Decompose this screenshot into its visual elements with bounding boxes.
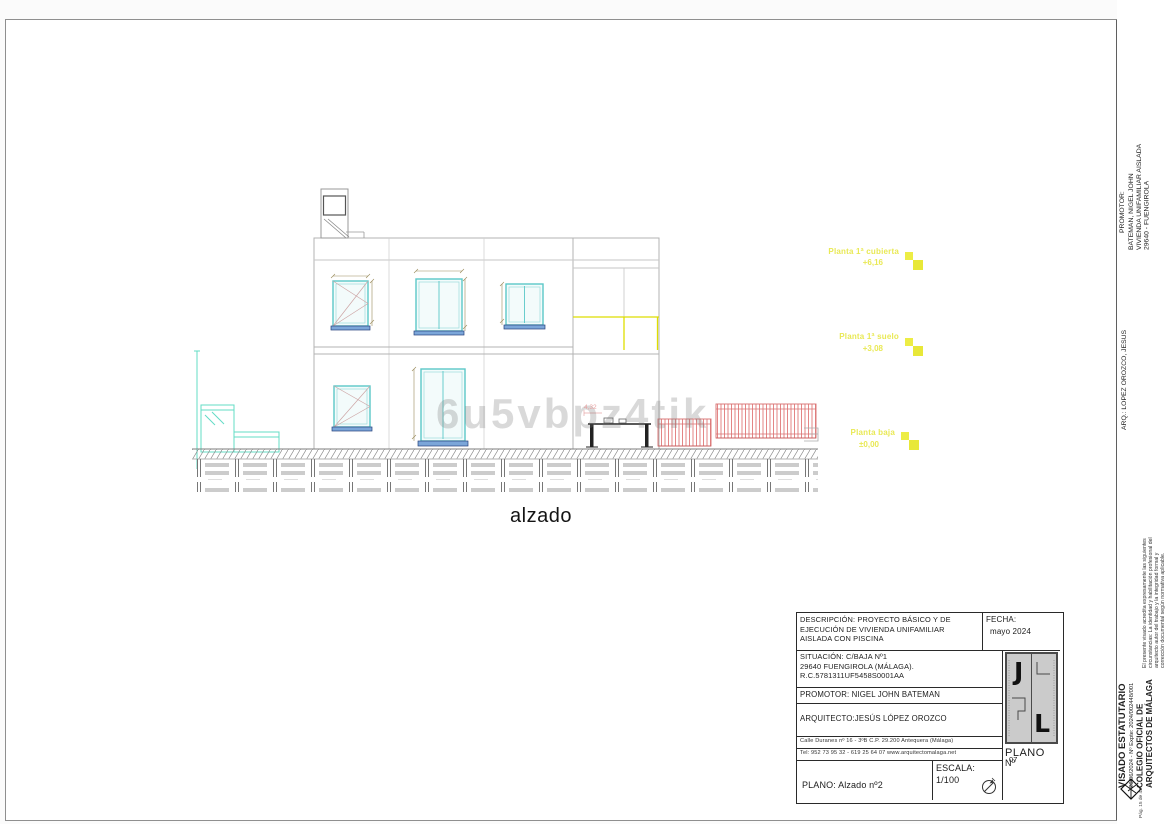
plano-number: 07 bbox=[1009, 755, 1018, 765]
watermark: 6u5vbpz4tik bbox=[436, 390, 709, 438]
titleblock-situacion: SITUACIÓN: C/BAJA Nº1 29640 FUENGIROLA (… bbox=[800, 652, 998, 681]
logo-letter-l: L bbox=[1034, 709, 1050, 738]
titleblock-promotor: PROMOTOR: NIGEL JOHN BATEMAN bbox=[800, 690, 998, 700]
descripcion-line3: AISLADA CON PISCINA bbox=[800, 634, 980, 644]
terrace-dimension: 4,32 bbox=[584, 404, 597, 411]
escala-label: ESCALA: bbox=[936, 763, 1000, 775]
level-value-3: ±0,00 bbox=[780, 440, 895, 449]
situacion-line1: SITUACIÓN: C/BAJA Nº1 bbox=[800, 652, 998, 662]
jl-architect-logo: J L bbox=[1005, 652, 1058, 744]
sidebar-promotor-line1: BATEMAN, NIGEL JOHN bbox=[1128, 80, 1136, 250]
sidebar-visado-block: VISADO ESTATUTARIO 26/06/2024 - Nº Expte… bbox=[1118, 628, 1154, 788]
situacion-line2: 29640 FUENGIROLA (MÁLAGA). bbox=[800, 662, 998, 672]
window-ground-1 bbox=[332, 386, 372, 431]
ground-strip bbox=[192, 449, 818, 459]
logo-letter-j: J bbox=[1014, 657, 1023, 686]
sidebar-arquitecto: ARQ.: LOPEZ OROZCO, JESUS bbox=[1121, 310, 1128, 430]
level-label-3: Planta baja bbox=[780, 428, 895, 437]
window-upper-2 bbox=[414, 269, 467, 335]
sidebar-promotor-line3: 29640 - FUENGIROLA bbox=[1144, 80, 1152, 250]
descripcion-line1: DESCRIPCIÓN: PROYECTO BÁSICO Y DE bbox=[800, 615, 980, 625]
titleblock-address2: Tel: 952 73 95 32 - 619 25 64 07 www.arq… bbox=[800, 750, 998, 757]
level-value-2: +3,08 bbox=[784, 344, 899, 353]
level-marker-icons bbox=[901, 252, 923, 450]
colegio-line1: COLEGIO OFICIAL DE bbox=[1136, 628, 1145, 788]
descripcion-line2: EJECUCIÓN DE VIVIENDA UNIFAMILIAR bbox=[800, 625, 980, 635]
title-block: DESCRIPCIÓN: PROYECTO BÁSICO Y DE EJECUC… bbox=[796, 612, 1064, 804]
fence-row bbox=[192, 459, 818, 492]
level-label-1: Planta 1ª cubierta bbox=[784, 247, 899, 256]
visado-sidebar: PROMOTOR: BATEMAN, NIGEL JOHN VIVIENDA U… bbox=[1117, 0, 1168, 824]
north-arrow-icon bbox=[980, 776, 998, 796]
situacion-line3: R.C.5781311UF5458S0001AA bbox=[800, 671, 998, 681]
visado-ref: 26/06/2024 - Nº Expte: 2024/002448/001 bbox=[1129, 628, 1136, 788]
level-value-1: +6,16 bbox=[784, 258, 899, 267]
colegio-line2: ARQUITECTOS DE MÁLAGA bbox=[1145, 628, 1154, 788]
fecha-label: FECHA: bbox=[986, 615, 1058, 625]
sidebar-promotor-block: BATEMAN, NIGEL JOHN VIVIENDA UNIFAMILIAR… bbox=[1128, 80, 1151, 250]
terrace-yellow-line bbox=[573, 317, 659, 350]
titleblock-plano-title: PLANO: Alzado nº2 bbox=[802, 780, 930, 792]
titleblock-descripcion: DESCRIPCIÓN: PROYECTO BÁSICO Y DE EJECUC… bbox=[800, 615, 980, 644]
titleblock-arquitecto: ARQUITECTO:JESÚS LÓPEZ OROZCO bbox=[800, 714, 998, 724]
drawing-sheet: 6u5vbpz4tik Planta 1ª cubierta +6,16 Pla… bbox=[5, 19, 1118, 821]
drawing-caption: alzado bbox=[481, 505, 601, 528]
fecha-value: mayo 2024 bbox=[986, 625, 1058, 637]
window-upper-1 bbox=[331, 274, 374, 330]
window-upper-3 bbox=[500, 282, 545, 329]
sidebar-promotor-line2: VIVIENDA UNIFAMILIAR AISLADA bbox=[1136, 80, 1144, 250]
sidebar-promotor-label: PROMOTOR: bbox=[1119, 173, 1126, 233]
visado-title: VISADO ESTATUTARIO bbox=[1118, 628, 1129, 788]
titleblock-fecha: FECHA: mayo 2024 bbox=[986, 615, 1058, 638]
level-label-2: Planta 1ª suelo bbox=[784, 332, 899, 341]
sidebar-page-ref: Pág. 15 de 43 bbox=[1139, 788, 1144, 818]
legal-line4: corrección documental según normativa ap… bbox=[1161, 528, 1167, 668]
titleblock-address1: Calle Duranes nº 16 - 3ºB C.P. 29.200 An… bbox=[800, 738, 998, 745]
roof-bulkhead bbox=[321, 189, 364, 238]
